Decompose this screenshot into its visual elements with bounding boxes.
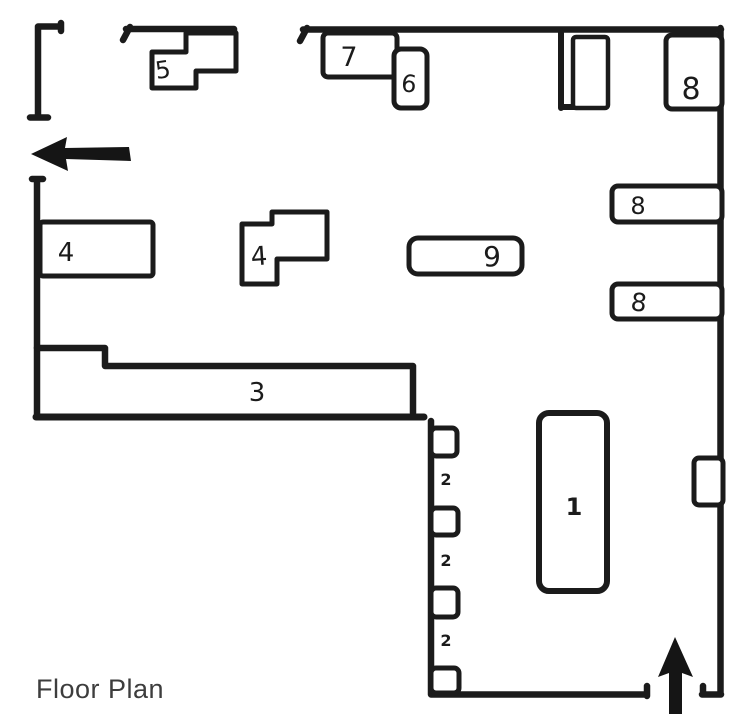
room-8b-shape bbox=[612, 186, 722, 222]
room-7-shape bbox=[323, 33, 397, 77]
wall-top-left-bracket bbox=[30, 23, 61, 118]
room-9-shape bbox=[409, 238, 522, 274]
floor-plan-drawing: 5 7 6 8 8 8 9 4 4 3 1 2 2 2 bbox=[0, 0, 754, 714]
page-title: Floor Plan bbox=[36, 674, 164, 705]
room-4a-label: 4 bbox=[58, 238, 75, 268]
wall-corridor-top bbox=[37, 348, 413, 413]
room-9-label: 9 bbox=[483, 240, 501, 273]
room-8b-label: 8 bbox=[630, 192, 645, 220]
entrance-arrow-icon bbox=[658, 637, 693, 714]
top-cabinet-shape bbox=[573, 37, 608, 108]
room-2a-label: 2 bbox=[440, 470, 451, 489]
right-wall-box-shape bbox=[694, 458, 723, 505]
wall-left-lower bbox=[32, 179, 43, 417]
wall-top-and-right bbox=[300, 28, 721, 694]
stall-box-2 bbox=[431, 508, 458, 535]
exit-arrow-icon bbox=[31, 137, 131, 171]
walls-group bbox=[30, 23, 721, 696]
stall-box-1 bbox=[431, 428, 457, 456]
room-8a-label: 8 bbox=[681, 72, 700, 107]
room-4b-label: 4 bbox=[250, 241, 269, 272]
floor-plan-page: 5 7 6 8 8 8 9 4 4 3 1 2 2 2 Floor Plan bbox=[0, 0, 754, 714]
stall-box-4 bbox=[431, 668, 459, 693]
room-6-label: 6 bbox=[400, 69, 418, 98]
stall-box-3 bbox=[431, 588, 458, 617]
room-2b-label: 2 bbox=[440, 551, 451, 570]
room-1-label: 1 bbox=[566, 493, 583, 521]
room-7-label: 7 bbox=[340, 42, 357, 73]
room-2c-label: 2 bbox=[440, 631, 451, 650]
room-3-label: 3 bbox=[249, 378, 266, 408]
